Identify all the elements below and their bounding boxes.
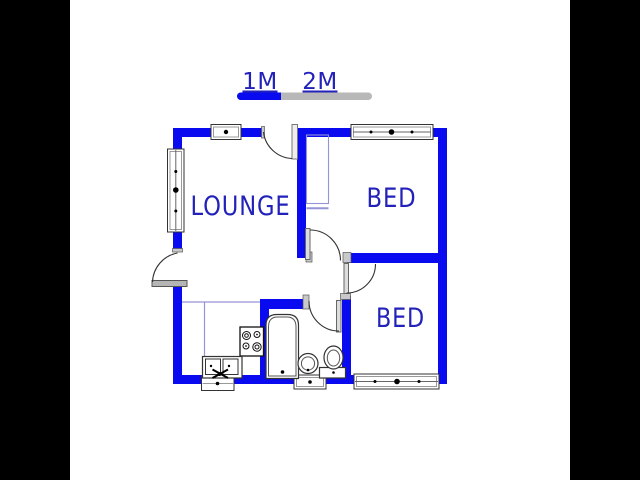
bed2-door-leaf [344,264,349,294]
bathroom-door-leaf [337,301,342,333]
lounge-side-door-leaf [152,281,187,287]
bathtub-drain [281,370,285,374]
kitchen-sink-icon [203,357,243,379]
wash-basin-icon [298,354,318,374]
bed1-door-leaf [306,229,311,260]
bathtub-icon [266,315,299,379]
window-bed1-top [351,125,433,140]
window-top-left [211,125,241,140]
wall-bed1-bed2-divider [347,253,447,263]
sink-basin-right [223,359,238,375]
window-pivot-dot [308,380,312,384]
stove-icon [240,327,264,356]
window-pivot-dot [173,187,179,193]
floor-plan-canvas: 1M 2M [0,0,640,480]
window-pivot-dot [224,130,228,134]
room-label-bed1: BED [367,183,417,214]
window-bed2-bottom [354,374,439,389]
window-pivot-dot [216,382,220,386]
left-matte-bar [0,0,70,480]
bath-door-jamb [303,295,309,309]
window-pivot-dot [394,379,400,385]
room-label-bed2: BED [376,303,425,334]
scale-bar-blue-segment-end [273,93,281,101]
bath-door-hinge-jamb [341,294,351,300]
window-lounge-left [168,149,185,232]
wall-left-lower-segment [173,285,182,384]
window-pivot-dot [389,129,395,135]
floor-plan-page: 1M 2M [0,0,640,480]
room-label-lounge: LOUNGE [191,191,291,222]
lounge-door-jamb [173,249,183,253]
right-matte-bar [570,0,640,480]
wall-lounge-bed1-divider [297,128,306,258]
front-door-leaf [292,125,298,160]
bed2-door-jamb [343,253,351,263]
